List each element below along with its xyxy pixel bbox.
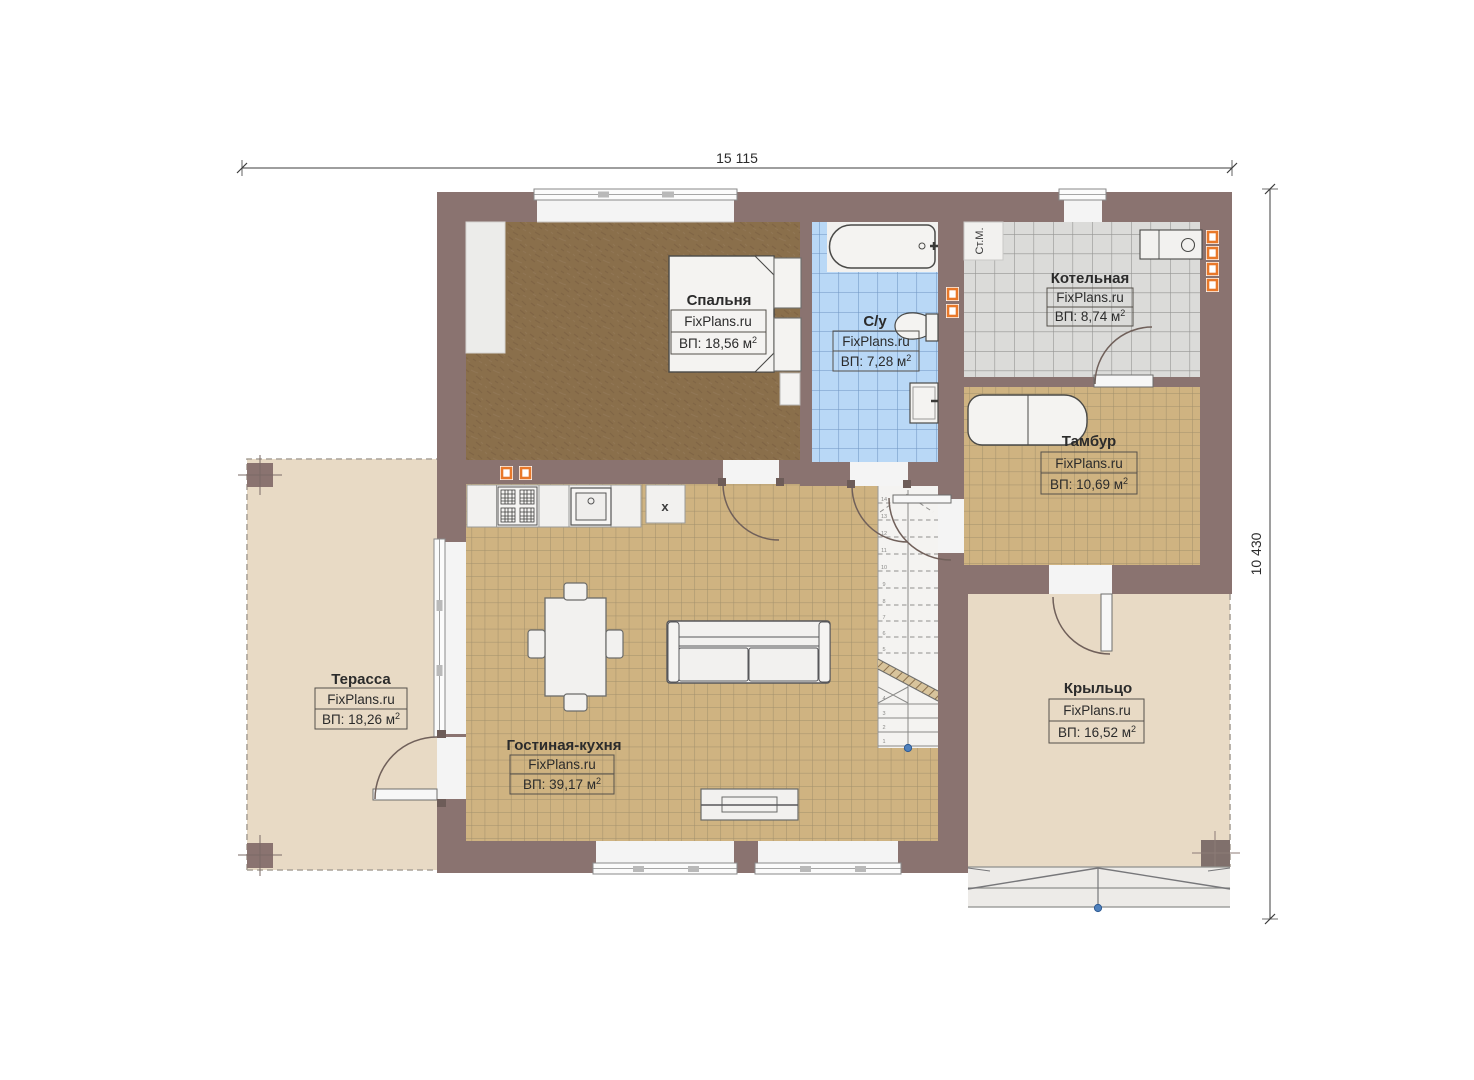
svg-text:x: x: [661, 499, 669, 514]
svg-text:FixPlans.ru: FixPlans.ru: [1056, 290, 1124, 305]
svg-text:2: 2: [882, 725, 885, 731]
svg-text:Ст.М.: Ст.М.: [974, 227, 986, 254]
svg-text:8: 8: [882, 599, 885, 605]
svg-text:Спальня: Спальня: [687, 292, 752, 309]
svg-text:11: 11: [881, 548, 887, 554]
svg-text:ВП: 39,17 м2: ВП: 39,17 м2: [523, 776, 601, 792]
svg-text:3: 3: [882, 711, 885, 717]
svg-text:ВП: 8,74 м2: ВП: 8,74 м2: [1055, 308, 1126, 324]
svg-text:FixPlans.ru: FixPlans.ru: [684, 314, 752, 329]
svg-text:9: 9: [882, 582, 885, 588]
svg-text:5: 5: [882, 647, 885, 653]
svg-text:14: 14: [881, 497, 887, 503]
svg-text:Крыльцо: Крыльцо: [1064, 680, 1132, 697]
svg-text:Гостиная-кухня: Гостиная-кухня: [507, 737, 622, 754]
svg-text:10 430: 10 430: [1248, 532, 1264, 575]
svg-text:ВП: 16,52 м2: ВП: 16,52 м2: [1058, 724, 1136, 740]
svg-text:6: 6: [882, 631, 885, 637]
svg-text:ВП: 18,56 м2: ВП: 18,56 м2: [679, 335, 757, 351]
svg-text:Терасса: Терасса: [331, 671, 391, 688]
svg-text:10: 10: [881, 565, 887, 571]
svg-text:1: 1: [882, 739, 885, 745]
svg-text:15 115: 15 115: [716, 150, 758, 166]
svg-text:FixPlans.ru: FixPlans.ru: [1055, 456, 1123, 471]
svg-text:7: 7: [882, 615, 885, 621]
svg-text:ВП: 7,28 м2: ВП: 7,28 м2: [841, 353, 912, 369]
svg-text:С/у: С/у: [863, 313, 887, 330]
svg-text:4: 4: [882, 696, 885, 702]
svg-text:FixPlans.ru: FixPlans.ru: [327, 692, 395, 707]
svg-text:FixPlans.ru: FixPlans.ru: [528, 757, 596, 772]
svg-text:FixPlans.ru: FixPlans.ru: [1063, 703, 1131, 718]
svg-text:FixPlans.ru: FixPlans.ru: [842, 334, 910, 349]
svg-text:ВП: 18,26 м2: ВП: 18,26 м2: [322, 711, 400, 727]
svg-text:Тамбур: Тамбур: [1062, 433, 1116, 450]
svg-text:13: 13: [881, 514, 887, 520]
svg-text:ВП: 10,69 м2: ВП: 10,69 м2: [1050, 476, 1128, 492]
svg-text:Котельная: Котельная: [1051, 270, 1130, 287]
